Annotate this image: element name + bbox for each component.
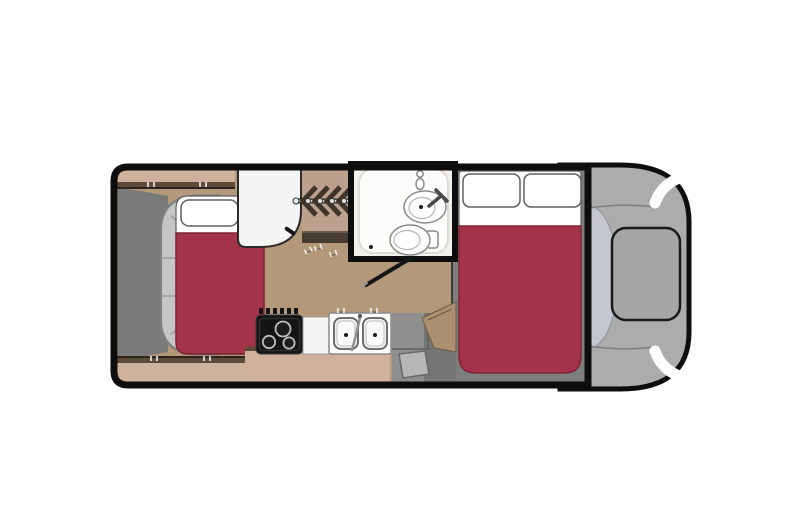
stove-knob (287, 308, 291, 314)
refrigerator (238, 167, 301, 247)
wet-bath (351, 164, 455, 259)
main-bed-pillow (463, 174, 520, 207)
stove-knob (280, 308, 284, 314)
cab-hood (612, 228, 680, 320)
main-bed (451, 169, 588, 384)
hanger-hook (342, 199, 347, 204)
rear-bed-blanket (176, 233, 264, 354)
overhead-cabinet-rear-top (115, 168, 235, 189)
refrigerator-body (238, 167, 301, 247)
entry-mat (399, 351, 429, 378)
shower-head-icon (416, 179, 424, 190)
toilet-bowl (390, 225, 430, 255)
cabinet-face (245, 351, 390, 383)
stove-knob (266, 308, 270, 314)
rod-end-cap (293, 198, 299, 204)
hanger-hook (318, 199, 323, 204)
shower-head-icon (417, 171, 423, 177)
sink-faucet-base (358, 314, 362, 318)
sink-drain (373, 333, 377, 337)
rear-bed-pillow (181, 200, 238, 226)
cabinet-edge (115, 358, 247, 363)
main-bed-blanket (459, 226, 581, 373)
counter-section (303, 317, 329, 354)
cabinet-face (115, 363, 247, 383)
cooktop (256, 308, 303, 354)
kitchen-sink (329, 313, 391, 354)
cabinet-shadow (115, 356, 247, 358)
cabinet-shadow (115, 187, 235, 189)
shelf-highlight (302, 231, 352, 233)
shower-drain (369, 245, 373, 249)
wardrobe-shelf (302, 233, 352, 243)
sink-drain (344, 333, 348, 337)
rv-floorplan-drawing (0, 0, 800, 528)
burner (276, 322, 291, 337)
bath-sink-drain (419, 205, 423, 209)
overhead-cabinet-rear-bottom (115, 356, 247, 383)
stove-knob (294, 308, 298, 314)
floorplan-canvas (0, 0, 800, 528)
hanger-hook (330, 199, 335, 204)
hanger-hook (306, 199, 311, 204)
stove-knob (273, 308, 277, 314)
stove-knob (259, 308, 263, 314)
burner (283, 337, 294, 348)
burner (263, 336, 275, 348)
entry-step (392, 302, 456, 383)
main-bed-pillow (524, 174, 581, 207)
cabinet-edge (115, 182, 235, 187)
